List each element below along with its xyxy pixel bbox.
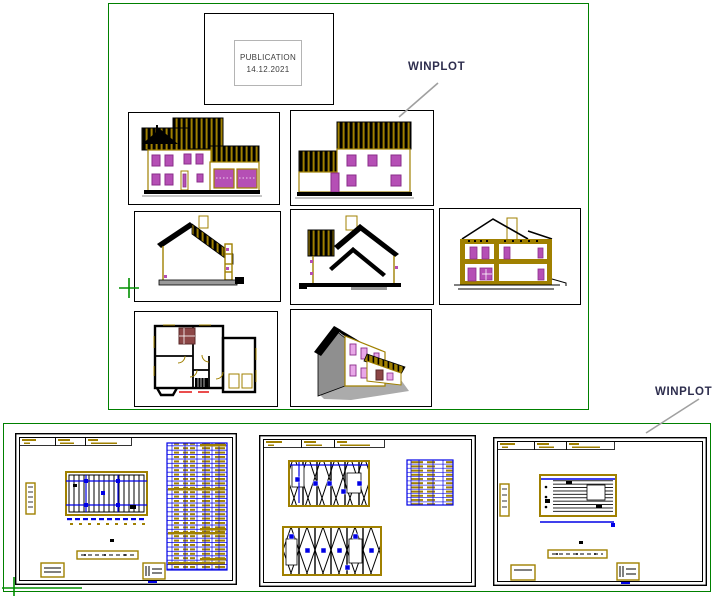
- inner-roof: [329, 247, 386, 277]
- base-strip: [297, 192, 412, 196]
- footing: [235, 277, 244, 284]
- drawing-frame-rear-elevation[interactable]: [290, 110, 434, 206]
- plot-sheet-area: [3, 423, 711, 592]
- framing-plan-figure: [66, 472, 147, 515]
- blue-tick: [148, 581, 157, 583]
- small-mark: [579, 541, 583, 544]
- base-strip: [144, 190, 260, 194]
- cladding-panel-figure: [540, 475, 616, 516]
- blue-tick: [621, 582, 630, 584]
- porch-door: [376, 370, 383, 380]
- floor-slab: [159, 280, 237, 285]
- winplot-annotation-bottom: WINPLOT: [655, 386, 712, 398]
- side-roof: [299, 151, 339, 172]
- beam-detail: [548, 550, 607, 558]
- schedule-table-small: [407, 460, 453, 505]
- outer-roof: [334, 224, 399, 257]
- stairs: [195, 378, 208, 387]
- beam-detail: [77, 551, 138, 559]
- drawing-frame-section-middle[interactable]: [290, 209, 434, 305]
- left-stud-detail: [26, 483, 35, 514]
- drawing-frame-front-elevation[interactable]: [128, 112, 280, 205]
- plot-sheet-framing-plan[interactable]: [15, 433, 237, 585]
- publication-date: 14.12.2021: [246, 65, 289, 74]
- corner-detail-left: [511, 565, 535, 580]
- section-left-drawing: [135, 212, 278, 299]
- drawing-frame-3d-view[interactable]: [290, 309, 432, 407]
- truss-panel-lower: [283, 527, 381, 575]
- cladding-panel-sheet-drawing: [493, 437, 707, 586]
- door-group: [181, 171, 188, 190]
- small-mark: [110, 539, 114, 542]
- rear-elevation-drawing: [291, 111, 431, 203]
- floor-plan-drawing: [135, 312, 275, 404]
- truss-panel-upper: [289, 461, 369, 506]
- wall-truss-sheet-drawing: [259, 435, 476, 587]
- walls-group: [313, 256, 394, 284]
- door: [331, 173, 339, 192]
- material-schedule-table: [167, 443, 227, 570]
- corner-detail-right: [617, 563, 639, 580]
- fittings: [310, 260, 398, 275]
- publication-stamp-inner: PUBLICATION 14.12.2021: [234, 40, 302, 86]
- front-elevation-drawing: [129, 113, 277, 202]
- publication-title: PUBLICATION: [240, 53, 296, 62]
- striped-wall-block: [308, 230, 334, 256]
- section-middle-drawing: [291, 210, 431, 302]
- section-right-drawing: [440, 209, 578, 302]
- chimney: [346, 216, 357, 230]
- winplot-annotation-top: WINPLOT: [408, 61, 465, 73]
- corner-detail-right: [143, 563, 165, 579]
- framing-plan-sheet-drawing: [15, 433, 237, 585]
- corner-detail-left: [41, 563, 64, 577]
- left-stud-detail: [500, 484, 509, 516]
- chimney: [199, 216, 208, 228]
- drawing-frame-floor-plan[interactable]: [134, 311, 278, 407]
- porch-window: [387, 373, 393, 380]
- plot-sheet-cladding-panel[interactable]: [493, 437, 707, 586]
- publication-stamp[interactable]: PUBLICATION 14.12.2021: [204, 13, 334, 105]
- house-3d-drawing: [291, 310, 429, 404]
- drawing-frame-section-left[interactable]: [134, 211, 281, 302]
- plot-sheet-wall-trusses[interactable]: [259, 435, 476, 587]
- main-roof: [337, 122, 411, 149]
- floor-line: [305, 283, 401, 287]
- winplot-preview-window: { "publication": { "title": "PUBLICATION…: [0, 0, 715, 596]
- drawing-frame-section-right[interactable]: [439, 208, 581, 305]
- roof-left-slope: [157, 222, 194, 248]
- plot-preview-area: PUBLICATION 14.12.2021 WINPLOT: [108, 3, 589, 410]
- slab-gray: [351, 287, 387, 290]
